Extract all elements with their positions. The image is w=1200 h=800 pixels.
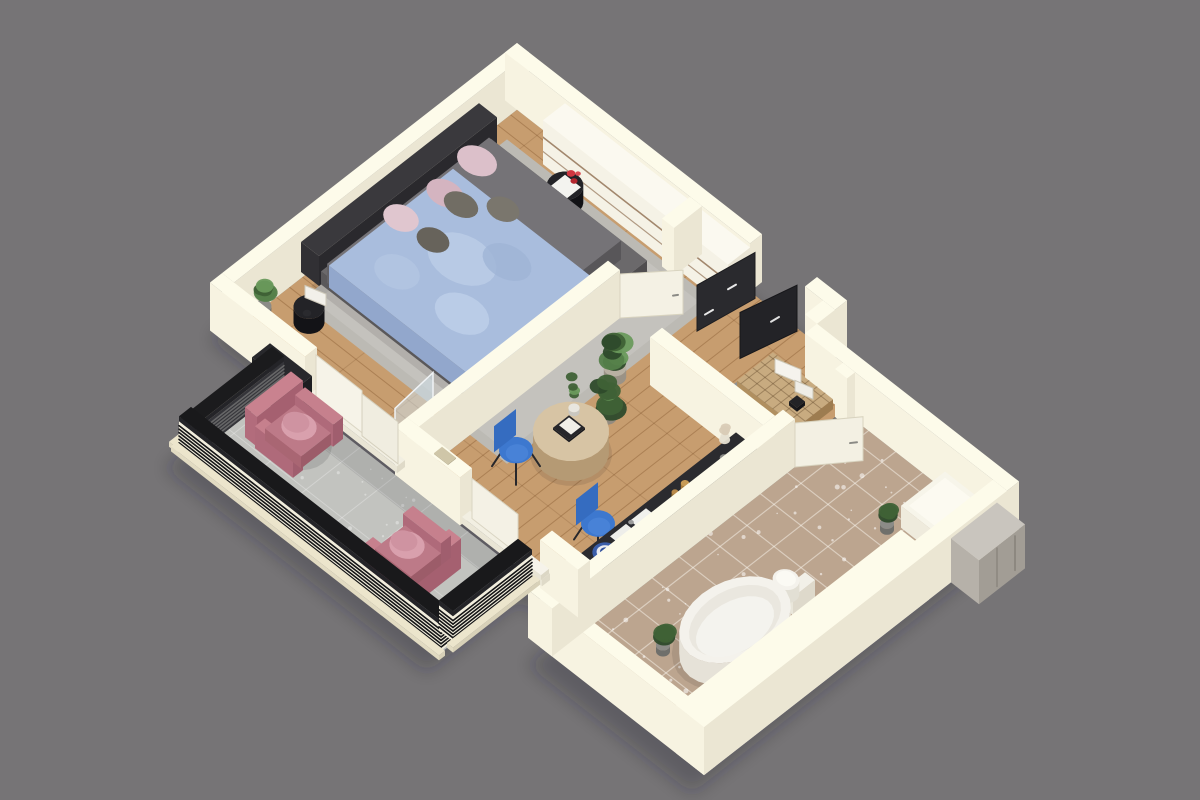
apartment-3d-floor-plan — [0, 0, 1200, 800]
bathroom-door-open — [795, 417, 863, 467]
bedroom-door-open — [620, 270, 683, 318]
floor-plan-render — [0, 0, 1200, 800]
